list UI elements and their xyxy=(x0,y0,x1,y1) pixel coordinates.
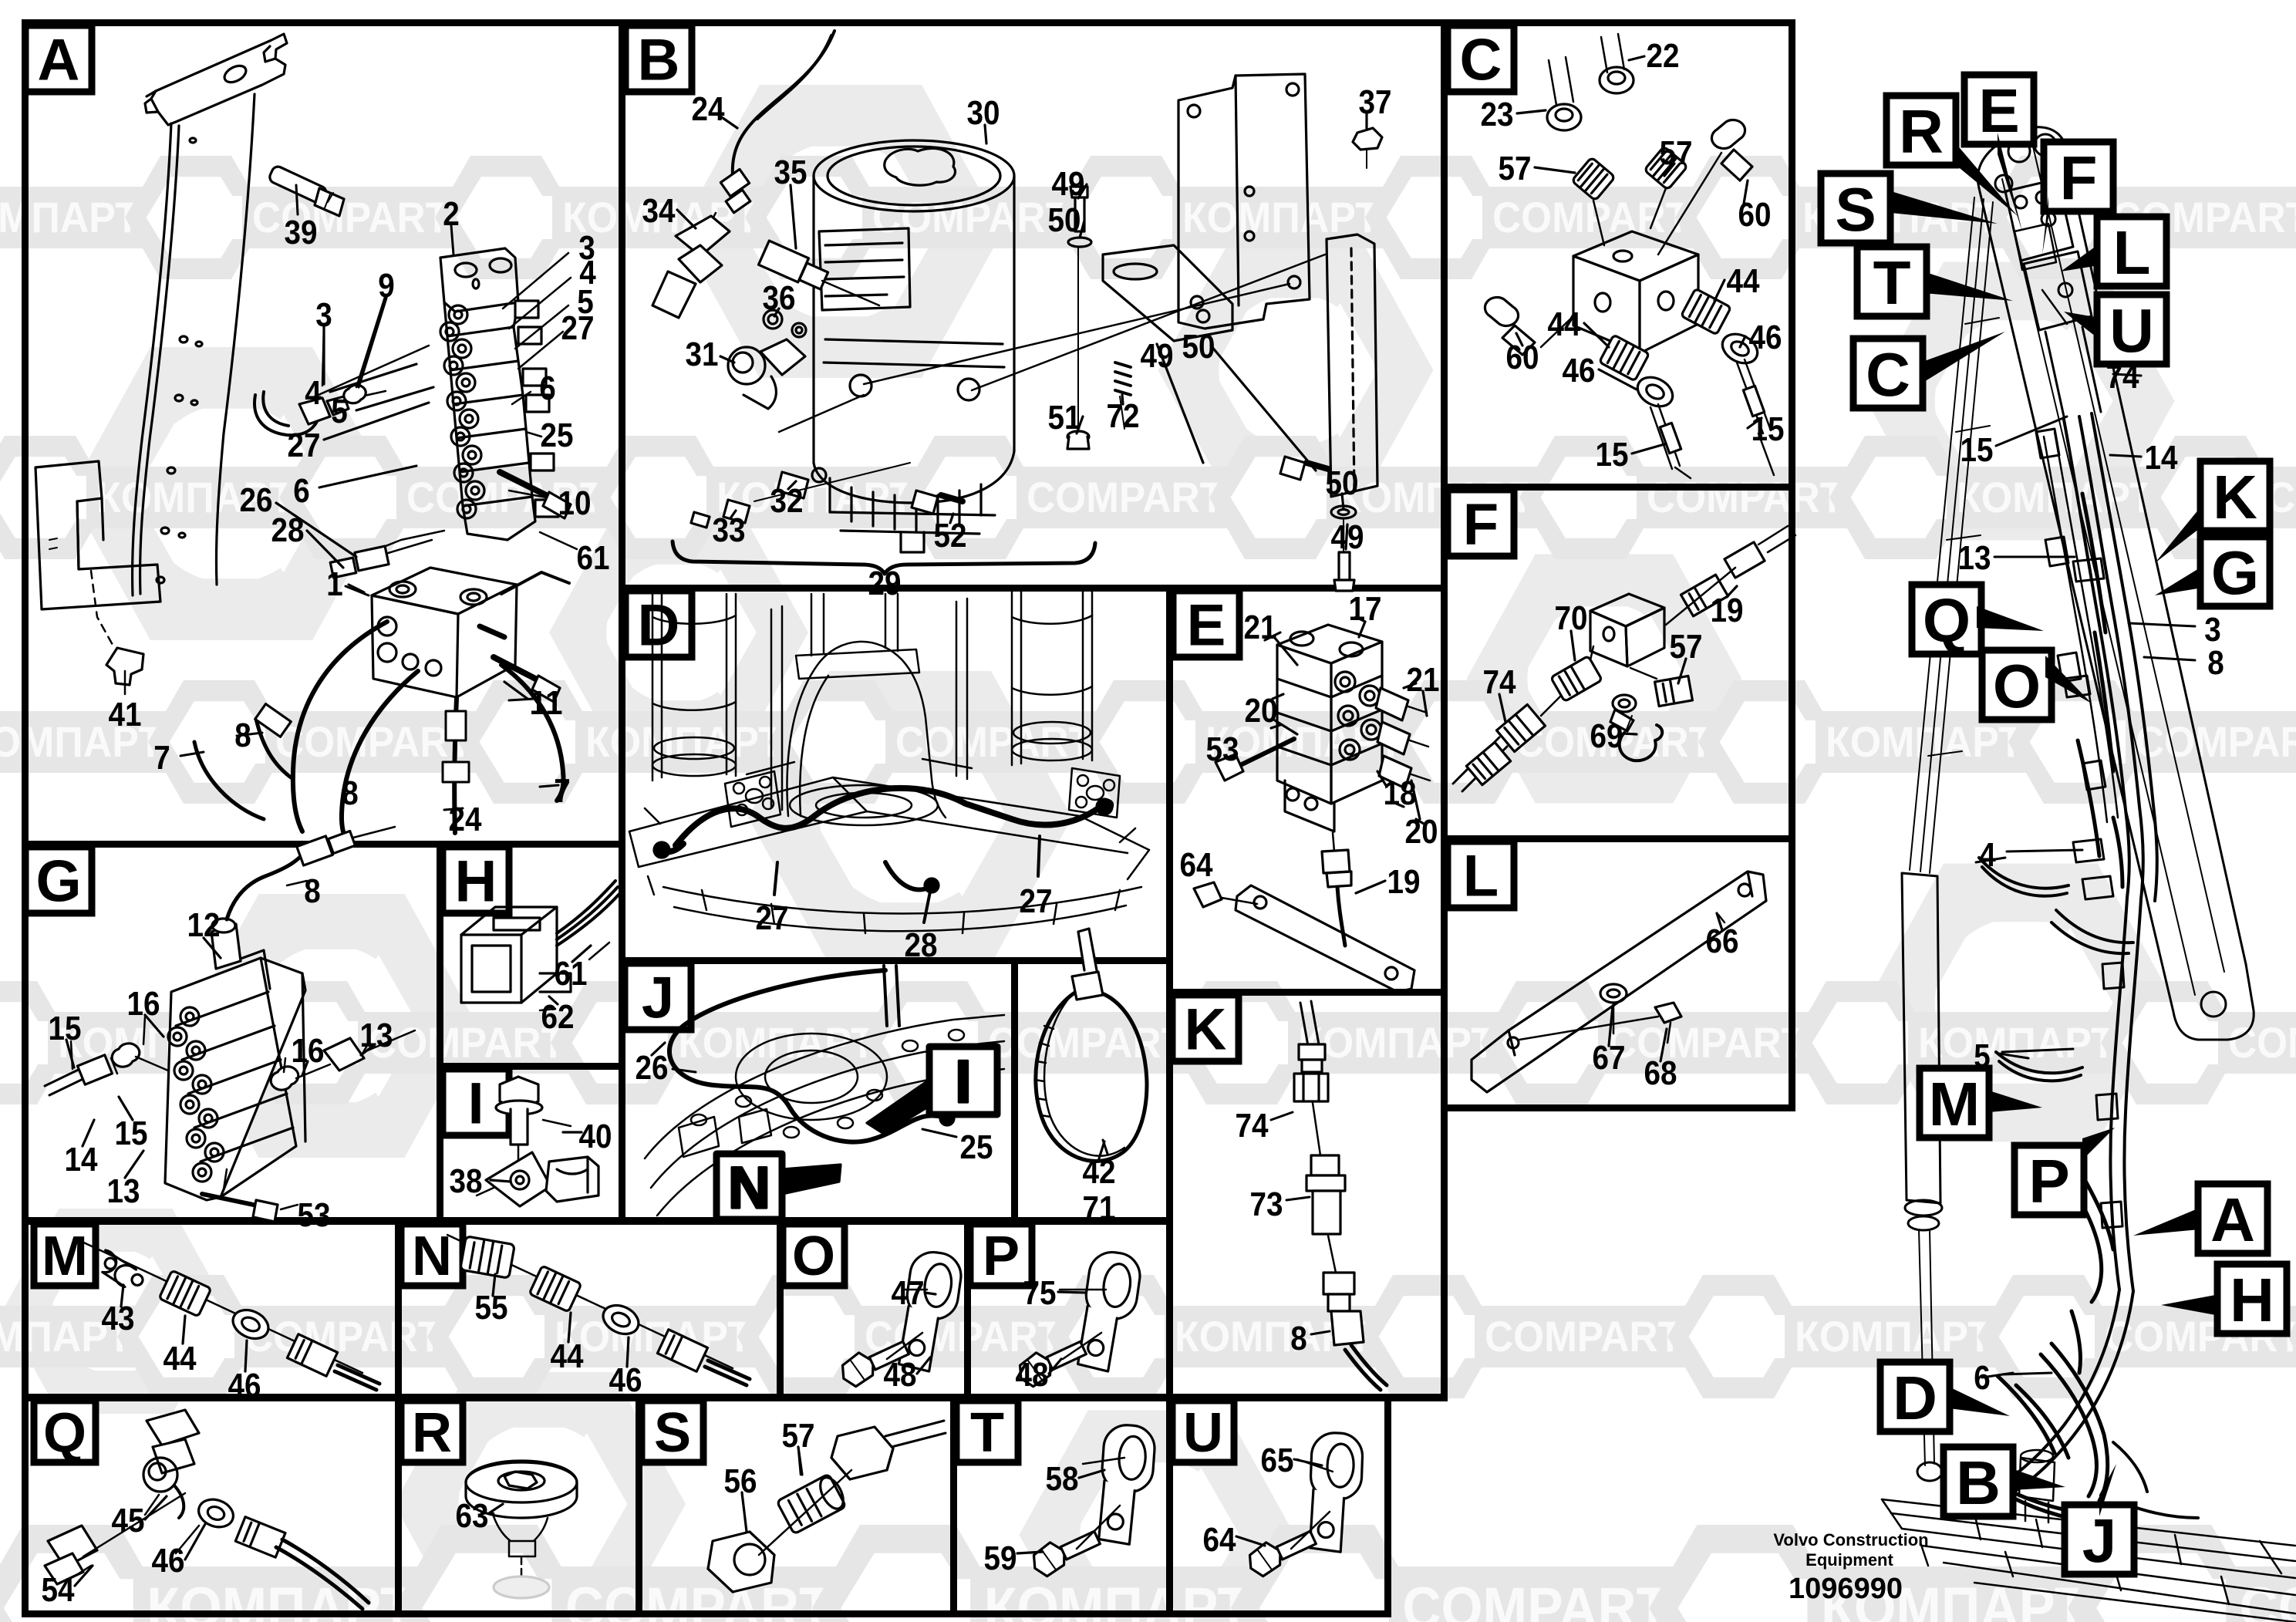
svg-text:КОМПАРТ: КОМПАРТ xyxy=(1918,1018,2116,1067)
svg-text:COMPART: COMPART xyxy=(1492,193,1690,241)
svg-text:2: 2 xyxy=(443,195,460,233)
svg-text:COMPART: COMPART xyxy=(1027,473,1224,521)
svg-text:8: 8 xyxy=(2207,644,2224,682)
svg-text:КОМПАРТ: КОМПАРТ xyxy=(1298,1018,1495,1067)
svg-text:13: 13 xyxy=(1958,539,1991,577)
svg-text:45: 45 xyxy=(112,1502,145,1539)
svg-text:34: 34 xyxy=(642,192,676,230)
svg-text:C: C xyxy=(1460,27,1502,93)
svg-text:J: J xyxy=(642,965,674,1030)
svg-text:72: 72 xyxy=(1107,397,1140,435)
svg-text:44: 44 xyxy=(1548,305,1581,343)
svg-text:24: 24 xyxy=(692,90,725,128)
svg-text:13: 13 xyxy=(107,1172,140,1210)
svg-text:КОМПАРТ: КОМПАРТ xyxy=(555,1312,752,1361)
svg-text:55: 55 xyxy=(475,1289,508,1327)
svg-text:COMPART: COMPART xyxy=(252,193,450,241)
svg-text:57: 57 xyxy=(782,1417,815,1455)
svg-text:Q: Q xyxy=(43,1402,86,1464)
svg-text:51: 51 xyxy=(1048,399,1081,437)
svg-text:61: 61 xyxy=(555,955,588,993)
svg-text:48: 48 xyxy=(1016,1356,1049,1394)
svg-text:41: 41 xyxy=(109,696,142,733)
svg-text:74: 74 xyxy=(1236,1107,1269,1145)
svg-text:17: 17 xyxy=(1349,590,1382,628)
svg-text:60: 60 xyxy=(1506,339,1539,376)
svg-text:46: 46 xyxy=(1563,352,1596,389)
svg-text:6: 6 xyxy=(293,472,310,510)
svg-text:K: K xyxy=(1185,996,1227,1062)
svg-text:COMPART: COMPART xyxy=(2240,1576,2296,1622)
svg-text:A: A xyxy=(38,27,80,93)
svg-text:15: 15 xyxy=(49,1010,82,1047)
svg-text:6: 6 xyxy=(1974,1359,1991,1397)
svg-text:38: 38 xyxy=(450,1162,483,1200)
svg-text:46: 46 xyxy=(228,1367,261,1404)
svg-text:28: 28 xyxy=(905,926,938,964)
svg-text:49: 49 xyxy=(1052,165,1085,203)
svg-text:75: 75 xyxy=(1023,1274,1057,1312)
svg-text:21: 21 xyxy=(1244,609,1277,646)
svg-text:57: 57 xyxy=(1670,628,1703,666)
svg-text:G: G xyxy=(35,848,81,914)
svg-text:E: E xyxy=(1187,592,1226,658)
svg-text:8: 8 xyxy=(342,774,359,812)
svg-text:64: 64 xyxy=(1203,1521,1236,1559)
svg-text:50: 50 xyxy=(1048,201,1081,239)
svg-text:44: 44 xyxy=(1727,262,1760,300)
svg-text:12: 12 xyxy=(187,906,221,944)
svg-text:6: 6 xyxy=(539,369,556,407)
svg-text:30: 30 xyxy=(967,94,1000,132)
svg-text:50: 50 xyxy=(1182,328,1215,366)
svg-text:32: 32 xyxy=(770,482,804,520)
svg-text:23: 23 xyxy=(1481,96,1514,133)
svg-text:D: D xyxy=(1893,1364,1937,1432)
svg-text:7: 7 xyxy=(153,739,170,777)
svg-text:14: 14 xyxy=(2145,439,2178,477)
svg-text:58: 58 xyxy=(1046,1460,1079,1498)
svg-text:4: 4 xyxy=(1979,836,1996,874)
svg-text:3: 3 xyxy=(2204,611,2221,649)
svg-text:40: 40 xyxy=(579,1118,612,1155)
svg-text:COMPART: COMPART xyxy=(244,1312,442,1361)
svg-text:65: 65 xyxy=(1261,1442,1294,1479)
svg-text:25: 25 xyxy=(960,1128,993,1166)
svg-text:4: 4 xyxy=(305,374,322,412)
svg-text:21: 21 xyxy=(1407,661,1440,699)
svg-text:8: 8 xyxy=(1290,1320,1307,1357)
svg-text:57: 57 xyxy=(1660,134,1693,172)
svg-text:39: 39 xyxy=(285,214,318,251)
svg-text:U: U xyxy=(1183,1402,1223,1464)
svg-text:COMPART: COMPART xyxy=(1647,473,1844,521)
svg-text:COMPART: COMPART xyxy=(872,193,1070,241)
svg-text:14: 14 xyxy=(65,1141,98,1179)
svg-text:C: C xyxy=(1866,340,1910,409)
svg-text:COMPART: COMPART xyxy=(1485,1312,1682,1361)
svg-text:59: 59 xyxy=(984,1539,1017,1577)
svg-text:63: 63 xyxy=(456,1497,489,1535)
svg-text:19: 19 xyxy=(1387,863,1421,901)
svg-text:15: 15 xyxy=(115,1114,148,1152)
svg-text:44: 44 xyxy=(551,1337,584,1375)
svg-text:27: 27 xyxy=(288,427,321,464)
svg-text:8: 8 xyxy=(304,872,321,910)
svg-text:B: B xyxy=(638,27,680,93)
svg-text:53: 53 xyxy=(298,1196,331,1234)
svg-text:H: H xyxy=(455,848,497,914)
svg-text:22: 22 xyxy=(1647,37,1680,75)
svg-text:70: 70 xyxy=(1555,599,1588,637)
svg-text:10: 10 xyxy=(558,484,592,522)
svg-text:COMPART: COMPART xyxy=(1402,1576,1669,1622)
svg-text:КОМПАРТ: КОМПАРТ xyxy=(1795,1312,1992,1361)
svg-text:27: 27 xyxy=(561,309,595,347)
svg-text:Volvo Construction: Volvo Construction xyxy=(1773,1530,1928,1549)
svg-text:67: 67 xyxy=(1593,1039,1626,1077)
svg-text:5: 5 xyxy=(331,393,348,430)
svg-text:31: 31 xyxy=(686,336,719,373)
svg-text:25: 25 xyxy=(541,416,574,454)
svg-text:18: 18 xyxy=(1384,774,1417,812)
svg-text:A: A xyxy=(2210,1185,2255,1254)
svg-text:M: M xyxy=(1929,1070,1981,1138)
svg-text:R: R xyxy=(1899,97,1944,166)
svg-text:37: 37 xyxy=(1359,83,1392,121)
svg-text:15: 15 xyxy=(1752,410,1785,448)
svg-text:20: 20 xyxy=(1245,692,1278,730)
svg-text:I: I xyxy=(955,1047,972,1115)
svg-text:11: 11 xyxy=(530,684,563,722)
svg-text:K: K xyxy=(2213,463,2257,531)
svg-text:15: 15 xyxy=(1596,436,1629,474)
svg-text:26: 26 xyxy=(636,1049,669,1087)
svg-text:49: 49 xyxy=(1141,337,1174,375)
svg-text:Q: Q xyxy=(1923,586,1971,655)
svg-text:24: 24 xyxy=(449,801,482,838)
svg-text:COMPART: COMPART xyxy=(1608,1018,1805,1067)
svg-text:F: F xyxy=(1463,491,1499,557)
svg-text:46: 46 xyxy=(152,1542,185,1580)
svg-text:53: 53 xyxy=(1206,730,1239,768)
svg-text:46: 46 xyxy=(1749,319,1782,356)
svg-text:E: E xyxy=(1978,76,2019,145)
svg-text:26: 26 xyxy=(240,481,273,519)
svg-text:9: 9 xyxy=(378,267,395,305)
svg-text:73: 73 xyxy=(1250,1185,1283,1223)
svg-text:71: 71 xyxy=(1083,1189,1116,1227)
svg-text:COMPART: COMPART xyxy=(368,1018,565,1067)
svg-text:I: I xyxy=(467,1071,484,1136)
svg-text:64: 64 xyxy=(1180,846,1213,884)
svg-text:O: O xyxy=(792,1226,835,1287)
svg-text:33: 33 xyxy=(713,511,746,549)
svg-text:G: G xyxy=(2211,538,2259,607)
svg-text:Equipment: Equipment xyxy=(1805,1550,1893,1570)
svg-text:74: 74 xyxy=(1483,663,1516,701)
svg-text:42: 42 xyxy=(1083,1153,1116,1191)
svg-text:N: N xyxy=(412,1226,452,1287)
svg-text:35: 35 xyxy=(774,153,807,191)
svg-text:56: 56 xyxy=(724,1462,757,1500)
svg-text:U: U xyxy=(2109,296,2154,365)
svg-text:T: T xyxy=(970,1402,1004,1464)
svg-text:36: 36 xyxy=(763,279,796,317)
svg-text:69: 69 xyxy=(1590,717,1623,755)
svg-text:H: H xyxy=(2230,1266,2274,1334)
svg-text:M: M xyxy=(42,1226,88,1287)
svg-text:43: 43 xyxy=(102,1300,135,1337)
svg-text:T: T xyxy=(1873,248,1911,317)
svg-text:28: 28 xyxy=(271,511,305,549)
svg-text:7: 7 xyxy=(554,772,571,810)
svg-text:16: 16 xyxy=(127,985,160,1023)
svg-text:L: L xyxy=(2113,218,2151,287)
svg-text:29: 29 xyxy=(868,565,902,602)
svg-text:66: 66 xyxy=(1706,922,1739,960)
svg-text:O: O xyxy=(1993,652,2041,720)
svg-text:49: 49 xyxy=(1331,518,1364,556)
svg-text:3: 3 xyxy=(315,296,332,334)
svg-text:54: 54 xyxy=(42,1571,75,1609)
svg-text:19: 19 xyxy=(1711,592,1744,629)
svg-text:57: 57 xyxy=(1499,150,1532,187)
svg-text:КОМПАРТ: КОМПАРТ xyxy=(0,193,140,241)
svg-text:P: P xyxy=(2028,1147,2069,1216)
svg-text:68: 68 xyxy=(1644,1054,1677,1092)
svg-text:48: 48 xyxy=(884,1356,917,1394)
svg-text:B: B xyxy=(1956,1448,2001,1517)
svg-text:61: 61 xyxy=(577,539,610,577)
svg-text:8: 8 xyxy=(234,717,251,754)
svg-text:27: 27 xyxy=(756,899,789,937)
svg-text:44: 44 xyxy=(164,1340,197,1378)
svg-text:47: 47 xyxy=(892,1274,925,1312)
svg-text:27: 27 xyxy=(1020,882,1053,920)
svg-text:1096990: 1096990 xyxy=(1789,1573,1903,1605)
svg-text:КОМПАРТ: КОМПАРТ xyxy=(1182,193,1380,241)
svg-text:15: 15 xyxy=(1961,431,1994,469)
svg-text:COMPART: COMPART xyxy=(275,717,473,766)
svg-text:52: 52 xyxy=(934,517,967,555)
svg-text:62: 62 xyxy=(541,998,575,1036)
svg-text:COMPART: COMPART xyxy=(2228,1018,2296,1067)
svg-text:F: F xyxy=(2060,143,2098,212)
svg-text:50: 50 xyxy=(1326,464,1359,502)
svg-text:13: 13 xyxy=(360,1017,393,1054)
svg-text:COMPART: COMPART xyxy=(2136,717,2296,766)
svg-text:60: 60 xyxy=(1738,196,1772,234)
svg-text:1: 1 xyxy=(326,565,343,603)
svg-text:P: P xyxy=(983,1226,1020,1287)
svg-text:J: J xyxy=(2082,1506,2117,1575)
svg-text:16: 16 xyxy=(292,1032,325,1070)
svg-text:N: N xyxy=(728,1155,770,1221)
svg-text:L: L xyxy=(1463,843,1499,909)
svg-text:S: S xyxy=(654,1402,691,1464)
svg-text:46: 46 xyxy=(609,1361,642,1399)
svg-text:20: 20 xyxy=(1405,813,1438,851)
svg-text:R: R xyxy=(412,1402,452,1464)
svg-text:D: D xyxy=(638,592,680,658)
svg-text:S: S xyxy=(1835,175,1876,244)
